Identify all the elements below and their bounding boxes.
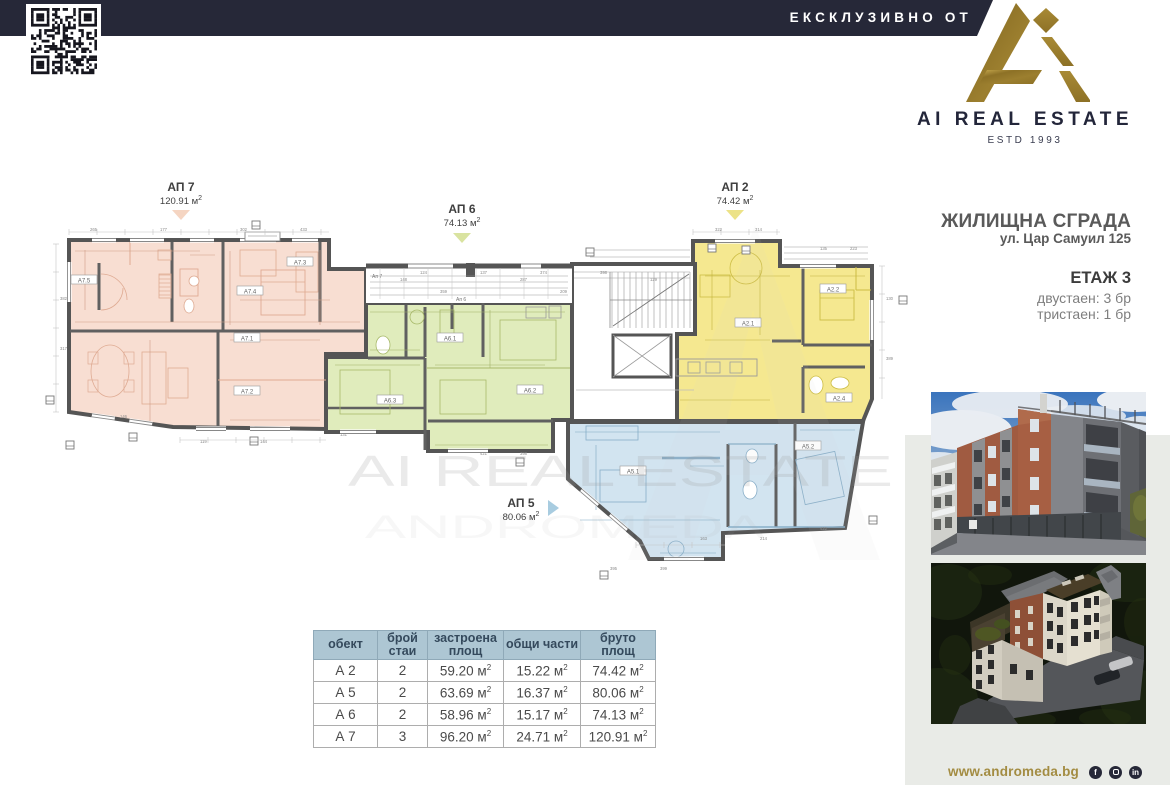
svg-text:148: 148	[400, 277, 408, 282]
svg-text:144: 144	[260, 439, 268, 444]
svg-text:129: 129	[650, 277, 658, 282]
svg-text:374: 374	[540, 270, 548, 275]
svg-text:287: 287	[520, 277, 528, 282]
svg-text:433: 433	[300, 227, 308, 232]
svg-text:130: 130	[886, 296, 894, 301]
svg-text:AI REAL ESTATE: AI REAL ESTATE	[348, 447, 893, 496]
svg-text:317: 317	[60, 346, 68, 351]
svg-text:265: 265	[90, 227, 98, 232]
svg-text:A7.5: A7.5	[78, 278, 91, 284]
svg-text:A7.1: A7.1	[241, 336, 254, 342]
svg-text:223: 223	[850, 246, 858, 251]
svg-text:119: 119	[200, 439, 207, 444]
svg-text:177: 177	[160, 227, 168, 232]
svg-text:302: 302	[240, 227, 248, 232]
svg-text:389: 389	[886, 356, 894, 361]
svg-text:A6.2: A6.2	[524, 388, 537, 394]
svg-text:A7.2: A7.2	[241, 389, 254, 395]
svg-text:A6.1: A6.1	[444, 336, 457, 342]
svg-text:A7.4: A7.4	[244, 289, 257, 295]
svg-text:137: 137	[480, 270, 488, 275]
svg-text:399: 399	[660, 566, 668, 571]
svg-text:A2.4: A2.4	[833, 396, 846, 402]
svg-text:146: 146	[120, 414, 128, 419]
svg-text:ANDROMEDA: ANDROMEDA	[365, 509, 766, 545]
svg-text:322: 322	[715, 227, 723, 232]
svg-text:A6.3: A6.3	[384, 398, 397, 404]
svg-text:Ап 7: Ап 7	[372, 274, 382, 280]
svg-text:131: 131	[340, 432, 348, 437]
svg-text:124: 124	[420, 270, 428, 275]
svg-text:359: 359	[440, 289, 448, 294]
svg-text:398: 398	[600, 270, 608, 275]
svg-text:135: 135	[820, 246, 828, 251]
svg-text:A2.2: A2.2	[827, 287, 840, 293]
svg-text:209: 209	[560, 289, 568, 294]
svg-text:382: 382	[60, 296, 68, 301]
svg-text:A7.3: A7.3	[294, 260, 307, 266]
svg-text:Ап 6: Ап 6	[456, 297, 466, 303]
svg-text:395: 395	[610, 566, 618, 571]
